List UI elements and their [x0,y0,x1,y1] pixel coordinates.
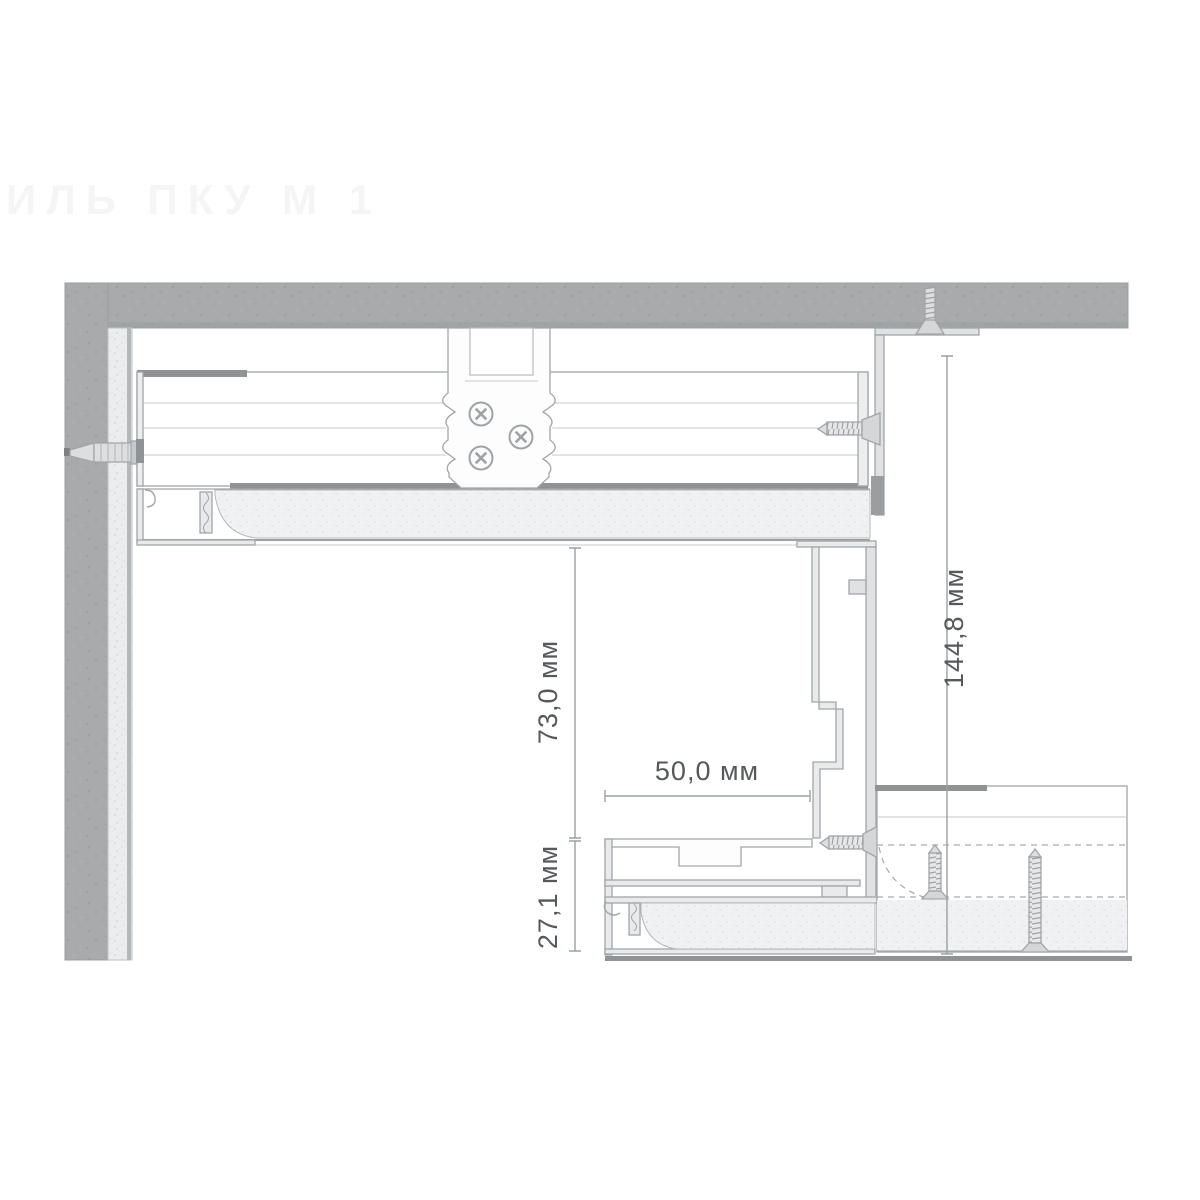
foot-tab [822,886,847,897]
ceiling-profile-section-drawing: ИЛЬ ПКУ М 1 [0,0,1200,1200]
dimension-lower-height: 27,1 мм [533,841,581,951]
profile-left-cap [137,372,143,486]
gypsum-layer [877,900,1127,950]
dimension-shelf-width: 50,0 мм [605,756,810,802]
concrete-ceiling-slab [65,283,1128,328]
concrete-wall [65,283,108,960]
phillips-screw [470,447,493,470]
side-screw-lower [820,826,878,858]
anchor-pad [136,439,144,463]
lower-right-cladding [875,785,1127,952]
hanger-connector [443,328,556,488]
top-flange-with-notch [605,839,812,866]
dimension-lower-height-label: 27,1 мм [533,845,563,949]
clip-hook [849,580,866,594]
phillips-screw [470,403,493,426]
bottom-plate [605,897,877,903]
upper-gypsum-board [137,489,870,545]
technical-drawing-page: ИЛЬ ПКУ М 1 [0,0,1200,1200]
dimension-cavity-height: 73,0 мм [533,548,581,838]
top-flange-bar [875,785,987,791]
connector-slot [470,328,533,375]
dimension-shelf-width-label: 50,0 мм [655,756,759,786]
dimension-cavity-height-label: 73,0 мм [533,640,563,744]
phillips-screw [510,426,533,449]
lower-gypsum-board-left [641,903,875,949]
profile-curl [145,490,155,507]
box-floor [605,880,860,886]
anchor-tip [64,448,70,456]
wall-plaster-layer [108,328,132,960]
bottom-finish-bar [605,956,1132,961]
watermark-text: ИЛЬ ПКУ М 1 [6,176,382,223]
profile-top-flange-bar [137,370,247,377]
stepped-web [812,547,843,838]
dimension-total-height-label: 144,8 мм [939,568,969,688]
